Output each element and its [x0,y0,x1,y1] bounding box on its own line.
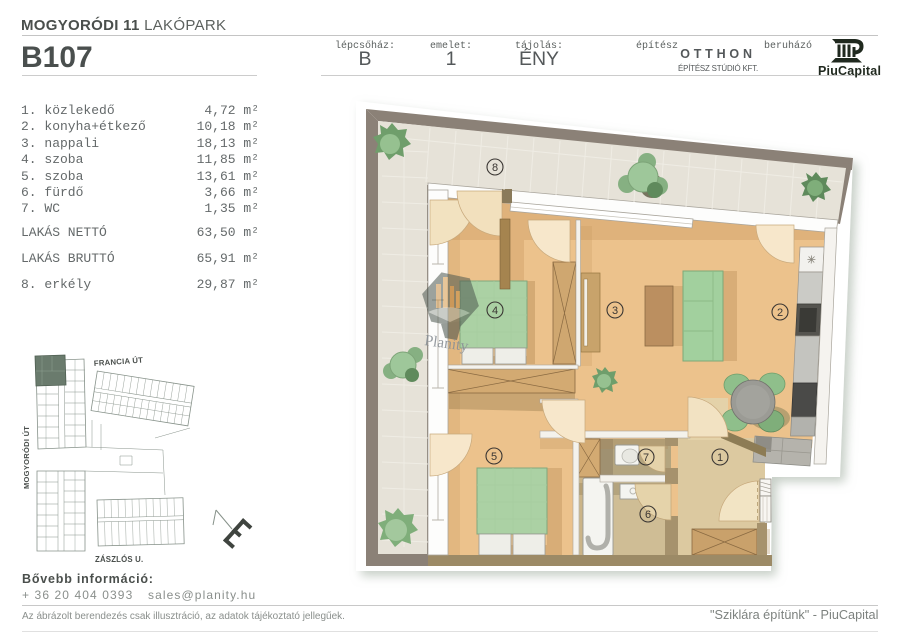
svg-text:6: 6 [645,509,651,521]
svg-text:1: 1 [717,452,723,464]
svg-text:4: 4 [492,305,498,317]
svg-text:7: 7 [643,452,649,464]
svg-text:ZÁSZLÓS U.: ZÁSZLÓS U. [95,555,143,564]
svg-text:8: 8 [492,162,498,174]
svg-text:5: 5 [491,451,497,463]
svg-text:MOGYORÓDI ÚT: MOGYORÓDI ÚT [22,426,31,489]
svg-text:3: 3 [612,305,618,317]
svg-text:2: 2 [777,307,783,319]
svg-text:FRANCIA ÚT: FRANCIA ÚT [94,356,144,368]
